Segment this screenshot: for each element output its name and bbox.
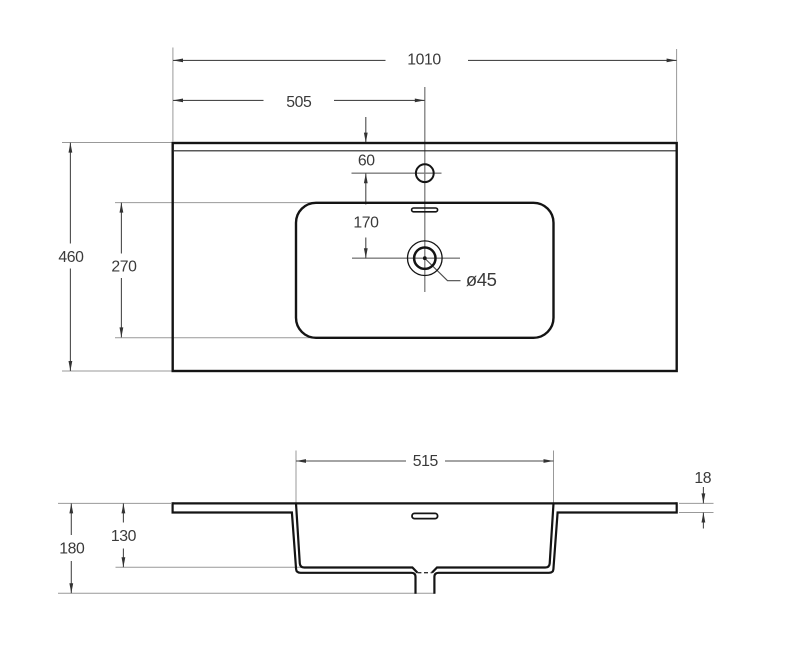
svg-text:130: 130 [111,528,137,545]
svg-text:ø45: ø45 [466,269,497,290]
svg-text:270: 270 [111,259,137,276]
svg-text:170: 170 [353,215,379,232]
svg-text:505: 505 [286,94,312,111]
svg-text:515: 515 [413,453,439,470]
svg-text:60: 60 [358,153,375,170]
svg-text:1010: 1010 [407,52,441,69]
svg-text:180: 180 [59,541,85,558]
svg-text:460: 460 [58,249,84,266]
svg-text:18: 18 [694,470,711,487]
